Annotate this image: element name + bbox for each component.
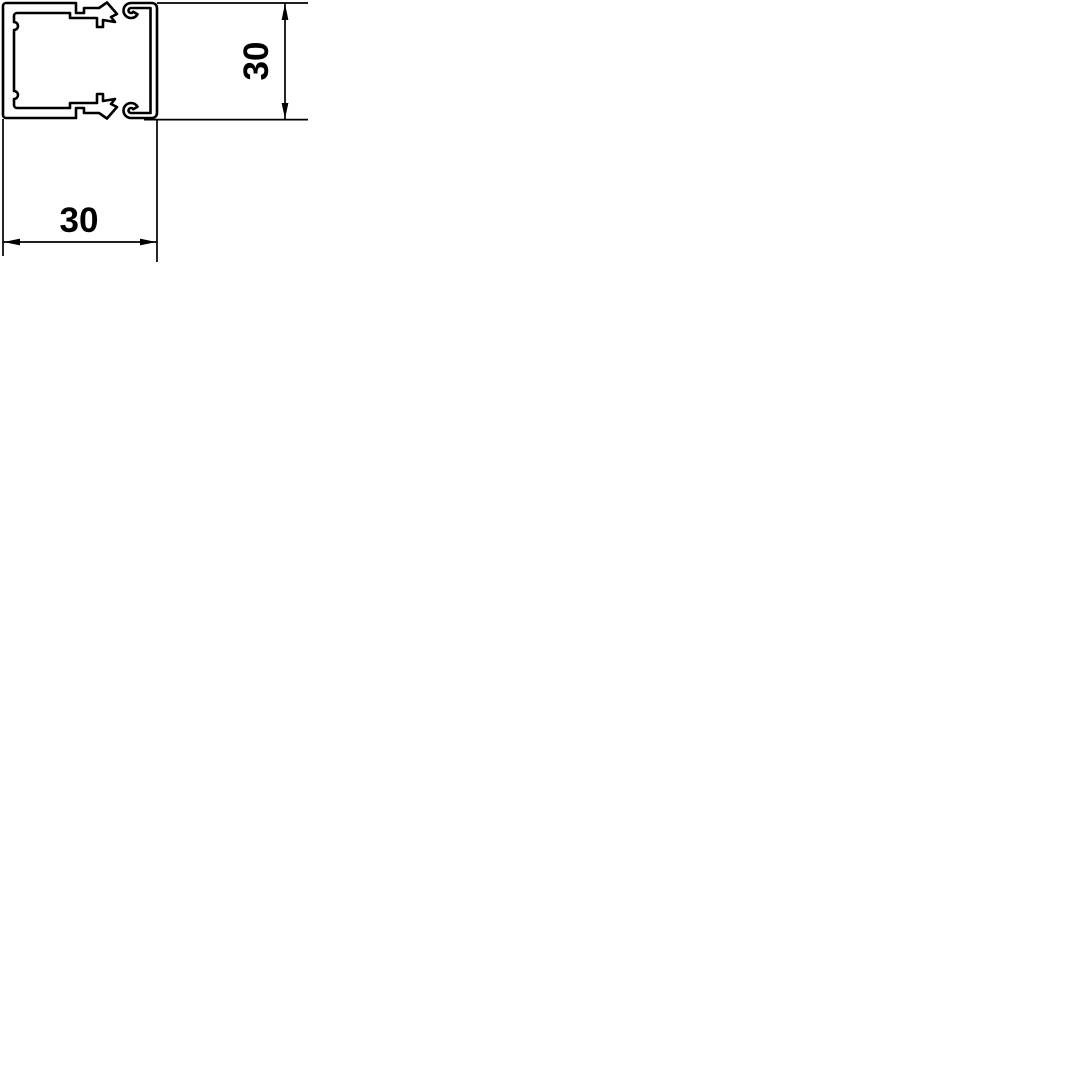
height-dimension: 30: [144, 3, 308, 120]
technical-drawing: 30 30: [0, 0, 1080, 1080]
width-dimension-label: 30: [60, 201, 99, 240]
width-dimension: 30: [3, 119, 157, 262]
trunking-base-profile-outline: [3, 3, 117, 119]
trunking-cover-profile-outline: [124, 3, 158, 118]
drawing-canvas: 30 30: [0, 0, 1080, 1080]
height-arrow-top: [282, 4, 289, 20]
height-arrow-bottom: [282, 103, 289, 119]
height-dimension-label: 30: [237, 42, 276, 81]
width-arrow-left: [4, 239, 20, 246]
width-arrow-right: [140, 239, 156, 246]
